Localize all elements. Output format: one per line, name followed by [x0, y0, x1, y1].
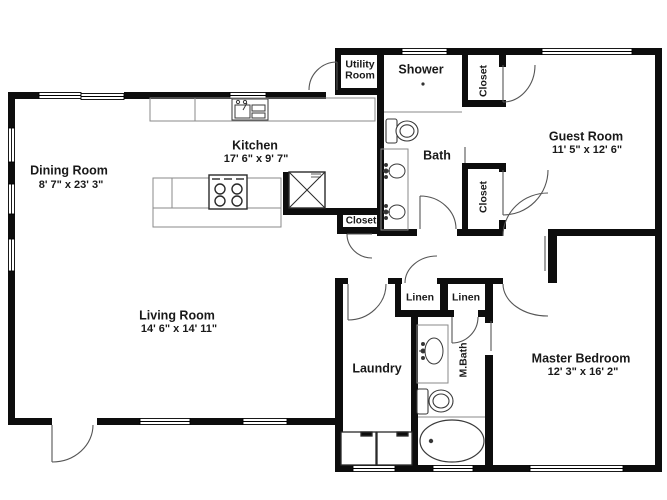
- dryer: [377, 432, 412, 465]
- mbath-vanity-sink: [417, 325, 448, 383]
- fixtures: [150, 82, 485, 465]
- room-dims-kitchen: 17' 6" x 9' 7": [224, 154, 289, 166]
- room-label-mbath: M.Bath: [458, 343, 469, 378]
- room-label-utility: Utility Room: [336, 60, 384, 83]
- bathtub: [420, 420, 484, 462]
- room-label-living: Living Room: [139, 309, 215, 323]
- floor-plan-drawing: [0, 0, 667, 500]
- linen-left-door-arc: [405, 256, 437, 283]
- kitchen-closet-door-arc: [347, 234, 372, 258]
- room-label-linen-right: Linen: [452, 292, 480, 303]
- room-label-linen-left: Linen: [406, 292, 434, 303]
- kitchen-sink: [232, 99, 268, 120]
- room-label-closet-kitchen: Closet: [346, 217, 377, 228]
- room-dims-dining: 8' 7" x 23' 3": [39, 180, 104, 192]
- room-dims-master: 12' 3" x 16' 2": [548, 367, 619, 379]
- stove: [209, 175, 247, 209]
- room-label-guest: Guest Room: [549, 130, 623, 144]
- room-label-bath: Bath: [423, 149, 451, 163]
- room-dims-guest: 11' 5" x 12' 6": [552, 145, 622, 157]
- windows: [9, 49, 633, 472]
- room-label-closet-guest-lower: Closet: [478, 181, 489, 213]
- closet-upper-door-arc: [503, 65, 535, 102]
- linen-right-door-arc: [452, 317, 478, 343]
- bath-door-arc: [420, 196, 456, 229]
- room-label-dining: Dining Room: [30, 164, 108, 178]
- utility-door-arc: [309, 62, 337, 90]
- floor-plan: Dining Room 8' 7" x 23' 3" Kitchen 17' 6…: [0, 0, 667, 500]
- washer: [341, 432, 376, 465]
- room-dims-living: 14' 6" x 14' 11": [141, 324, 217, 336]
- closet-lower-door-arc: [503, 170, 548, 215]
- room-label-kitchen: Kitchen: [232, 139, 278, 153]
- front-door-arc: [52, 425, 93, 462]
- room-label-shower: Shower: [398, 63, 443, 77]
- guest-entry-door-arc: [503, 193, 548, 271]
- bath-vanity-sinks: [381, 149, 408, 230]
- shower-drain: [421, 82, 424, 85]
- room-label-laundry: Laundry: [352, 362, 401, 376]
- room-label-closet-guest-upper: Closet: [478, 65, 489, 97]
- room-label-master: Master Bedroom: [532, 352, 631, 366]
- mbath-toilet: [417, 389, 453, 414]
- laundry-door-arc: [348, 284, 386, 320]
- master-door-arc: [503, 284, 548, 316]
- walls: [8, 48, 662, 472]
- refrigerator: [289, 172, 325, 208]
- bath-toilet: [386, 119, 418, 143]
- door-arcs: [52, 62, 548, 462]
